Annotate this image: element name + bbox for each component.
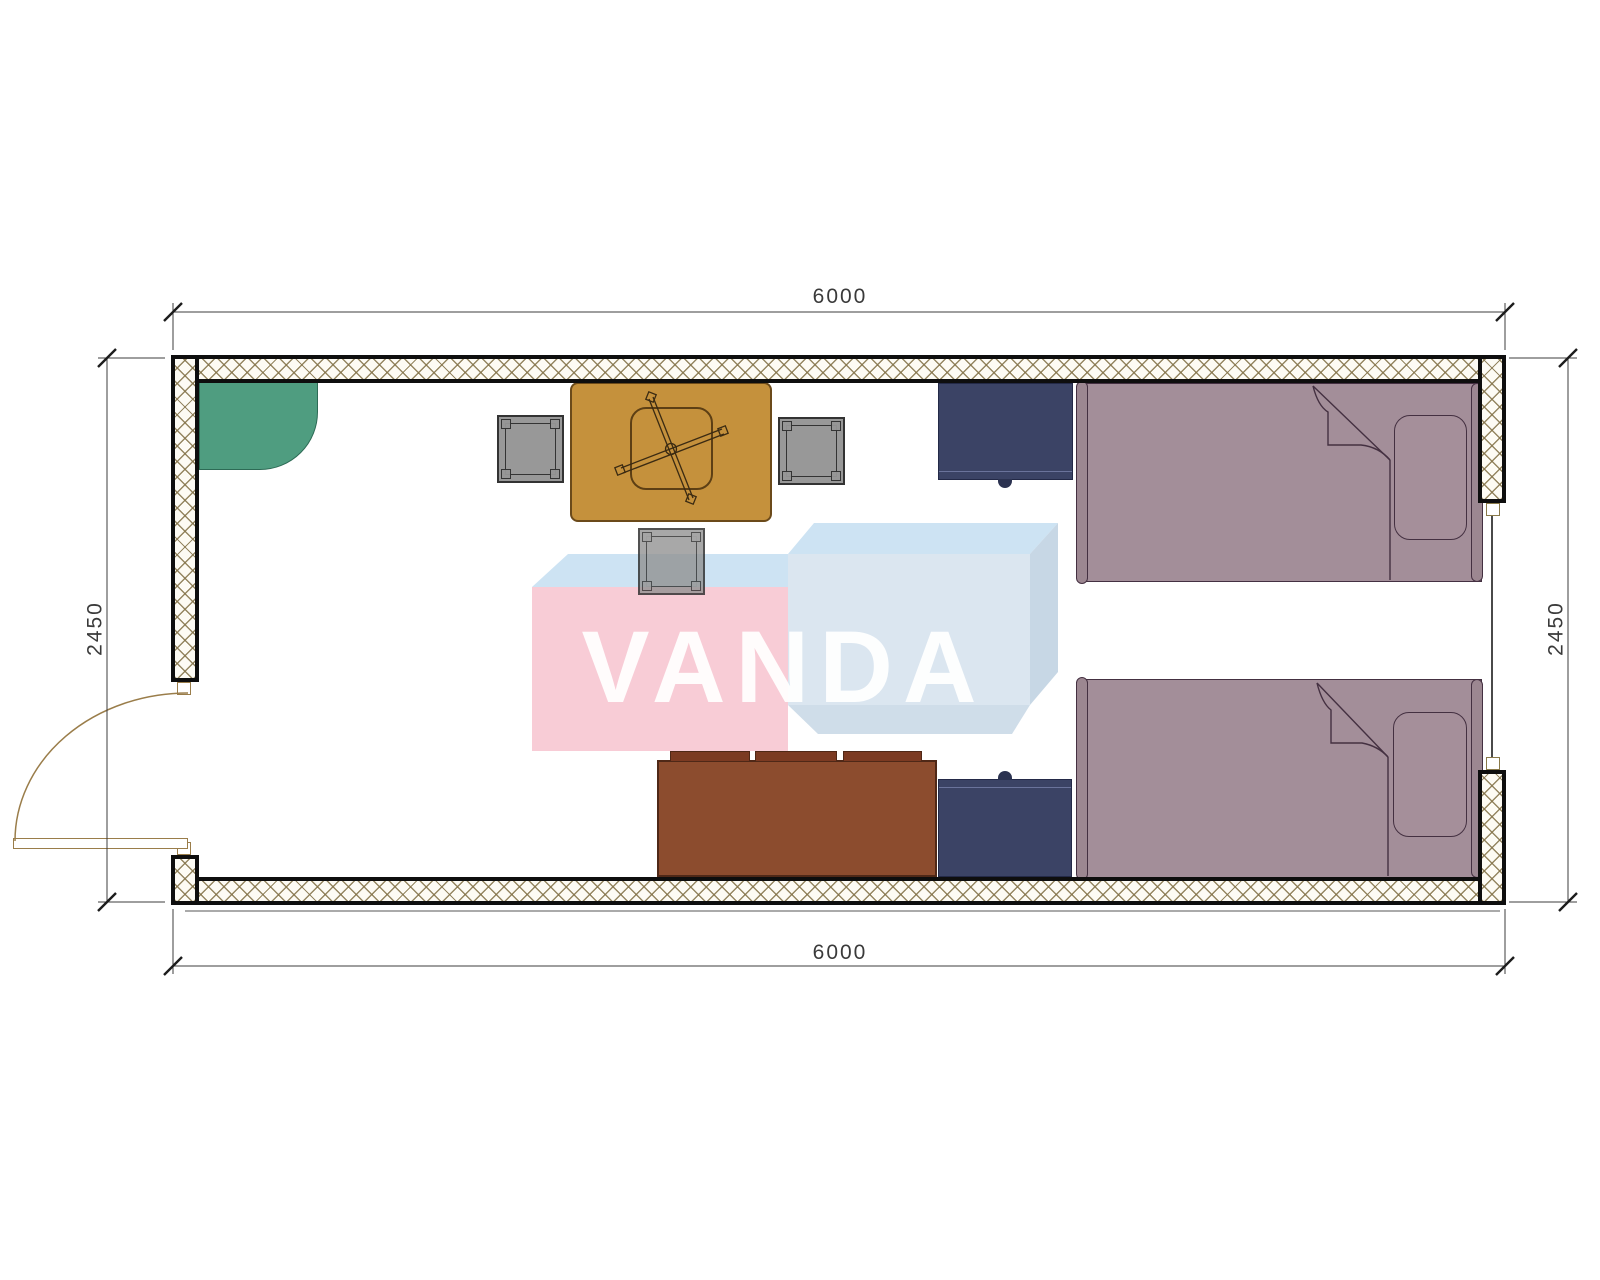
wall-bottom (171, 877, 1506, 905)
dimension-label-right: 2450 (1546, 579, 1567, 679)
sofa (657, 760, 937, 877)
nightstand-bottom (938, 779, 1072, 877)
sofa-back-cushion (755, 751, 837, 762)
nightstand-bottom-knob (998, 771, 1012, 780)
sofa-back-cushion (843, 751, 922, 762)
stool-frame (505, 423, 556, 475)
stool-frame (646, 536, 697, 587)
stool-left (497, 415, 564, 483)
bed-top-foot-rail (1076, 381, 1088, 584)
stool-bottom (638, 528, 705, 595)
wall-right-lower (1478, 770, 1506, 905)
dimension-label-top: 6000 (790, 286, 890, 307)
bed-top-pillow (1394, 415, 1467, 540)
window-frame-bottom (1486, 757, 1500, 770)
stool-frame (786, 425, 837, 477)
bed-bottom-foot-rail (1076, 677, 1088, 880)
window-frame-top (1486, 503, 1500, 516)
wall-top (171, 355, 1506, 383)
wall-left-door-jamb (171, 855, 199, 905)
vanda-watermark-text: VANDA (524, 616, 1044, 718)
dining-table-inner-edge (630, 407, 713, 490)
wall-left-upper (171, 355, 199, 682)
wall-right-upper (1478, 355, 1506, 503)
door-frame-top (177, 682, 191, 695)
sofa-back-cushion (670, 751, 750, 762)
stool-right (778, 417, 845, 485)
door-leaf (13, 838, 188, 849)
dimension-label-bottom: 6000 (790, 942, 890, 963)
bed-bottom-pillow (1393, 712, 1467, 837)
nightstand-top (938, 383, 1073, 480)
dimension-label-left: 2450 (85, 579, 106, 679)
floor-plan-canvas: VANDA (0, 0, 1600, 1280)
